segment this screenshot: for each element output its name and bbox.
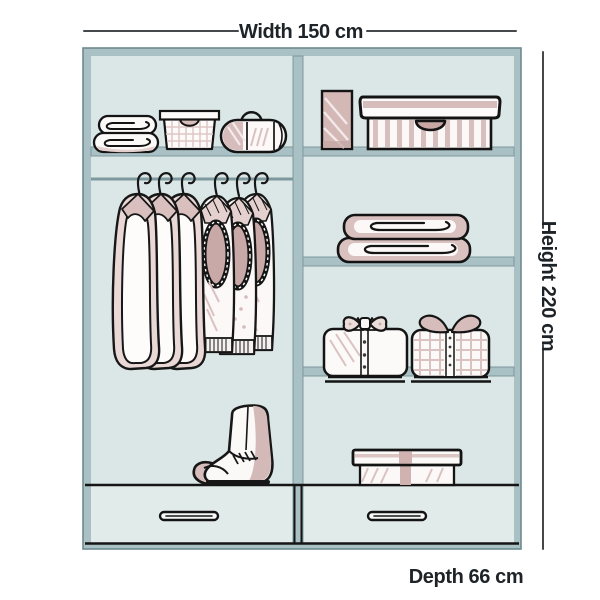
left-drawer-handle <box>160 512 218 520</box>
right-drawer-handle <box>368 512 426 520</box>
hanging-shirt-icon <box>113 194 159 369</box>
storage-box-icon <box>360 97 500 149</box>
dimension-depth: Depth 66 cm <box>409 566 524 588</box>
wire-basket-icon <box>160 111 219 149</box>
folded-towels-icon <box>94 116 158 152</box>
dimension-width: Width 150 cm <box>84 21 516 43</box>
gift-box-icon <box>353 450 461 485</box>
hanging-clothes <box>113 173 274 369</box>
height-label: Height 220 cm <box>537 221 559 351</box>
width-label: Width 150 cm <box>239 21 363 43</box>
depth-label: Depth 66 cm <box>409 566 524 588</box>
dimension-height: Height 220 cm <box>537 52 559 549</box>
wardrobe-dimensions-diagram: Width 150 cm Height 220 cm Depth 66 cm <box>0 0 600 600</box>
center-divider <box>293 56 303 543</box>
small-box-icon <box>322 91 352 149</box>
wardrobe-diagram-canvas: Width 150 cm Height 220 cm Depth 66 cm <box>0 0 600 600</box>
folded-blankets-icon <box>338 215 470 262</box>
